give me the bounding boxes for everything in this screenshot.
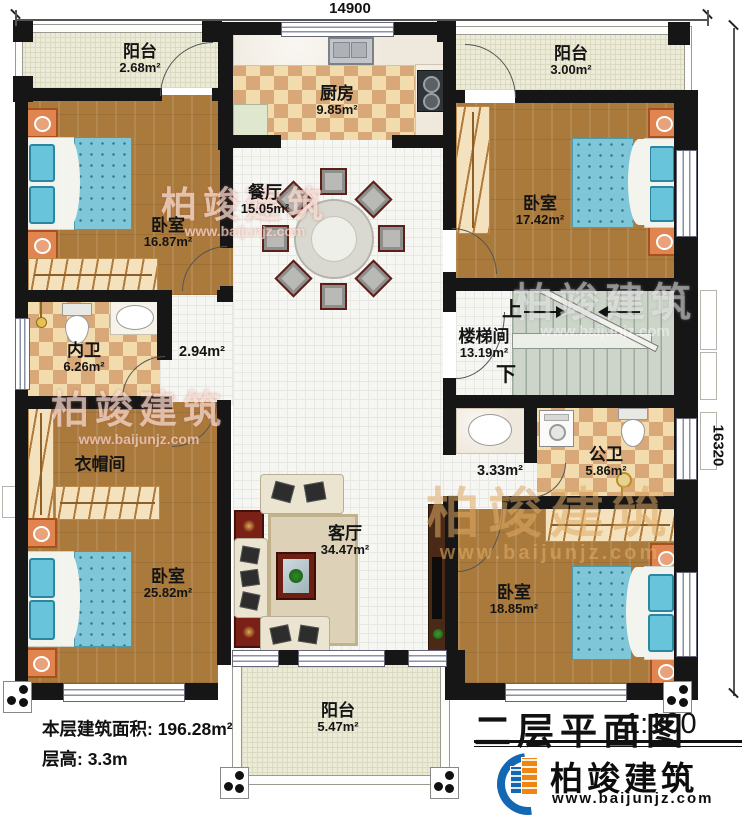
arrow-left-icon [598,306,608,318]
wardrobe [28,258,158,292]
pillow [29,144,55,182]
dimension-top: 14900 [300,0,400,17]
stairs-down-label: 下 [492,364,520,386]
room-name: 卧室 [462,583,566,602]
wall [524,395,537,463]
column-marker [220,767,249,799]
room-area: 6.26m² [32,360,136,375]
room-label-corridor-b: 3.33m² [458,463,542,479]
floor-height-text: 层高: 3.3m [42,746,342,771]
dining-chair [320,283,347,310]
room-label-stairwell: 楼梯间 13.19m² [432,327,536,361]
wall [217,290,233,302]
nightstand [26,230,58,260]
window [676,150,697,237]
title-underline [474,740,742,743]
wall [443,496,458,509]
window [232,650,279,667]
stairs-down-text: 下 [496,364,516,386]
sofa-cushion [271,481,295,504]
room-area: 16.87m² [116,235,220,250]
wall [183,683,218,700]
brand-building-icon [521,757,538,795]
room-name: 客厅 [293,524,397,543]
room-name: 阳台 [88,42,192,61]
pillow [29,186,55,224]
window-sill [700,352,717,400]
window [281,22,394,37]
blanket-fold [628,139,650,225]
wardrobe [545,508,676,542]
fridge [233,104,268,138]
sofa-cushion [298,625,319,645]
room-name: 卧室 [116,567,220,586]
window [676,572,697,657]
sofa-chaise [260,474,344,514]
room-label-balcony-tr: 阳台 3.00m² [519,44,623,78]
pillow [648,614,674,652]
window [408,650,447,667]
pillow [649,186,675,222]
pull-cord [40,302,42,318]
room-area: 2.94m² [158,344,246,360]
dining-chair [378,225,405,252]
wall [458,683,505,700]
room-label-living: 客厅 34.47m² [293,524,397,558]
pillow [29,600,55,640]
room-name: 楼梯间 [432,327,536,346]
sofa-cushion [269,624,291,645]
dimension-line-right [733,28,735,696]
room-label-bath-inner: 内卫 6.26m² [32,341,136,375]
plant [289,569,303,583]
wall [218,135,281,148]
room-area: 18.85m² [462,602,566,617]
dimension-ext [707,10,709,26]
washing-machine [539,410,574,447]
room-label-bedroom-br: 卧室 18.85m² [462,583,566,617]
balcony-post [668,22,690,45]
stair-direction-line [524,311,556,313]
room-label-kitchen: 厨房 9.85m² [285,84,389,118]
sofa-cushion [240,546,261,565]
room-area: 13.19m² [432,346,536,361]
room-label-bedroom-bl: 卧室 25.82m² [116,567,220,601]
balcony-post [13,76,33,102]
sofa-cushion [240,591,261,610]
wall [277,650,298,665]
floor-plan-canvas: 柏竣建筑 www.baijunjz.com 柏竣建筑 www.baijunjz.… [0,0,750,818]
title-underline-thin [474,746,742,747]
arrow-right-icon [556,306,566,318]
wall [217,400,231,665]
burner [423,93,440,110]
wall [383,650,408,665]
balcony-post [202,20,222,42]
room-name: 餐厅 [213,183,317,202]
room-label-cloakroom: 衣帽间 [48,455,152,474]
pillow [29,558,55,598]
room-area: 2.68m² [88,61,192,76]
dimension-line-top [15,19,708,21]
column-marker [430,767,459,799]
room-label-dining: 餐厅 15.05m² [213,183,317,217]
room-name: 公卫 [554,445,658,464]
room-area: 34.47m² [293,543,397,558]
wall [15,88,162,101]
window [15,318,30,390]
room-name: 厨房 [285,84,389,103]
room-area: 17.42m² [488,213,592,228]
pillow [649,146,675,182]
room-label-bedroom-tl: 卧室 16.87m² [116,216,220,250]
wall [443,278,698,291]
sofa [234,538,268,618]
wall [515,90,674,103]
room-area: 5.86m² [554,464,658,479]
balcony-railing [15,24,220,33]
burner [423,76,440,93]
room-label-bedroom-tr: 卧室 17.42m² [488,194,592,228]
stair-direction-line [608,311,640,313]
dimension-ext [15,10,17,26]
stairs-up-text: 上 [502,299,522,321]
nightstand [26,108,58,138]
room-name: 内卫 [32,341,136,360]
room-label-bath-public: 公卫 5.86m² [554,445,658,479]
stairs-up-label: 上 [498,299,526,321]
blanket-fold [58,138,80,227]
wall [443,378,456,455]
wash-basin [468,414,512,446]
wash-basin [116,305,154,330]
washer-panel [544,414,569,421]
column-marker [3,681,32,713]
room-label-corridor-a: 2.94m² [158,344,246,360]
wall [220,95,233,248]
sofa-cushion [304,481,327,502]
room-label-balcony-tl: 阳台 2.68m² [88,42,192,76]
blanket-fold [626,567,648,657]
pillow [648,574,674,612]
floor-area-text: 本层建筑面积: 196.28m² [42,716,342,741]
room-area: 15.05m² [213,202,317,217]
dining-table-top [311,216,357,262]
sofa-cushion [240,569,260,587]
sink-basin [351,42,367,58]
stove [417,70,444,112]
washer-door [549,424,566,441]
dining-chair [320,168,347,195]
room-name: 衣帽间 [48,455,152,474]
wall [15,85,28,700]
dining-chair [262,225,289,252]
wall [443,395,698,408]
nightstand [25,648,57,678]
kitchen-sink [328,37,374,65]
balcony-railing [445,26,692,35]
blanket-fold [58,552,80,644]
nightstand [25,518,57,548]
room-name: 卧室 [116,216,220,235]
window [676,418,697,480]
balcony-railing [232,775,450,785]
balcony-post [437,20,456,42]
wall [443,291,456,312]
room-name: 卧室 [488,194,592,213]
plant [433,629,443,639]
wall [443,22,456,230]
dimension-right: 16320 [710,416,727,476]
pull-cord-knob [36,317,47,328]
wall [15,290,172,302]
room-area: 9.85m² [285,103,389,118]
sink-basin [333,42,350,58]
coffee-table [276,552,316,600]
balcony-door [298,650,385,667]
room-name: 阳台 [519,44,623,63]
room-area: 3.33m² [458,463,542,479]
plan-scale: 1:100 [624,708,697,741]
window-sill [700,290,717,350]
brand-website: www.baijunjz.com [552,790,713,807]
window [63,683,185,702]
window [505,683,627,702]
room-area: 3.00m² [519,63,623,78]
wardrobe [456,106,490,234]
room-area: 25.82m² [116,586,220,601]
tv-screen [432,557,442,619]
bed-blanket [572,566,632,660]
cloakroom-closet [55,486,160,520]
